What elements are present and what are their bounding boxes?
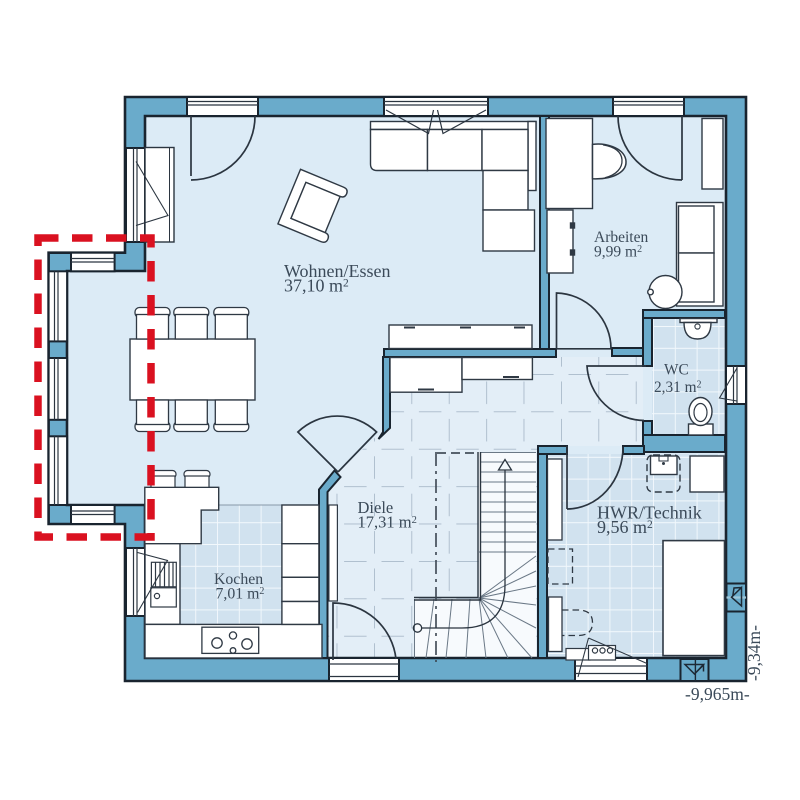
svg-text:2,31 m2: 2,31 m2 <box>654 379 702 396</box>
svg-text:17,31 m2: 17,31 m2 <box>358 513 417 532</box>
svg-text:-9,34m-: -9,34m- <box>744 625 764 681</box>
svg-text:9,56 m2: 9,56 m2 <box>597 517 653 537</box>
svg-text:9,99 m2: 9,99 m2 <box>594 244 642 261</box>
svg-text:WC: WC <box>664 362 689 379</box>
svg-text:-9,965m-: -9,965m- <box>685 684 750 704</box>
svg-text:7,01 m2: 7,01 m2 <box>216 586 265 603</box>
svg-text:37,10 m2: 37,10 m2 <box>284 276 349 296</box>
